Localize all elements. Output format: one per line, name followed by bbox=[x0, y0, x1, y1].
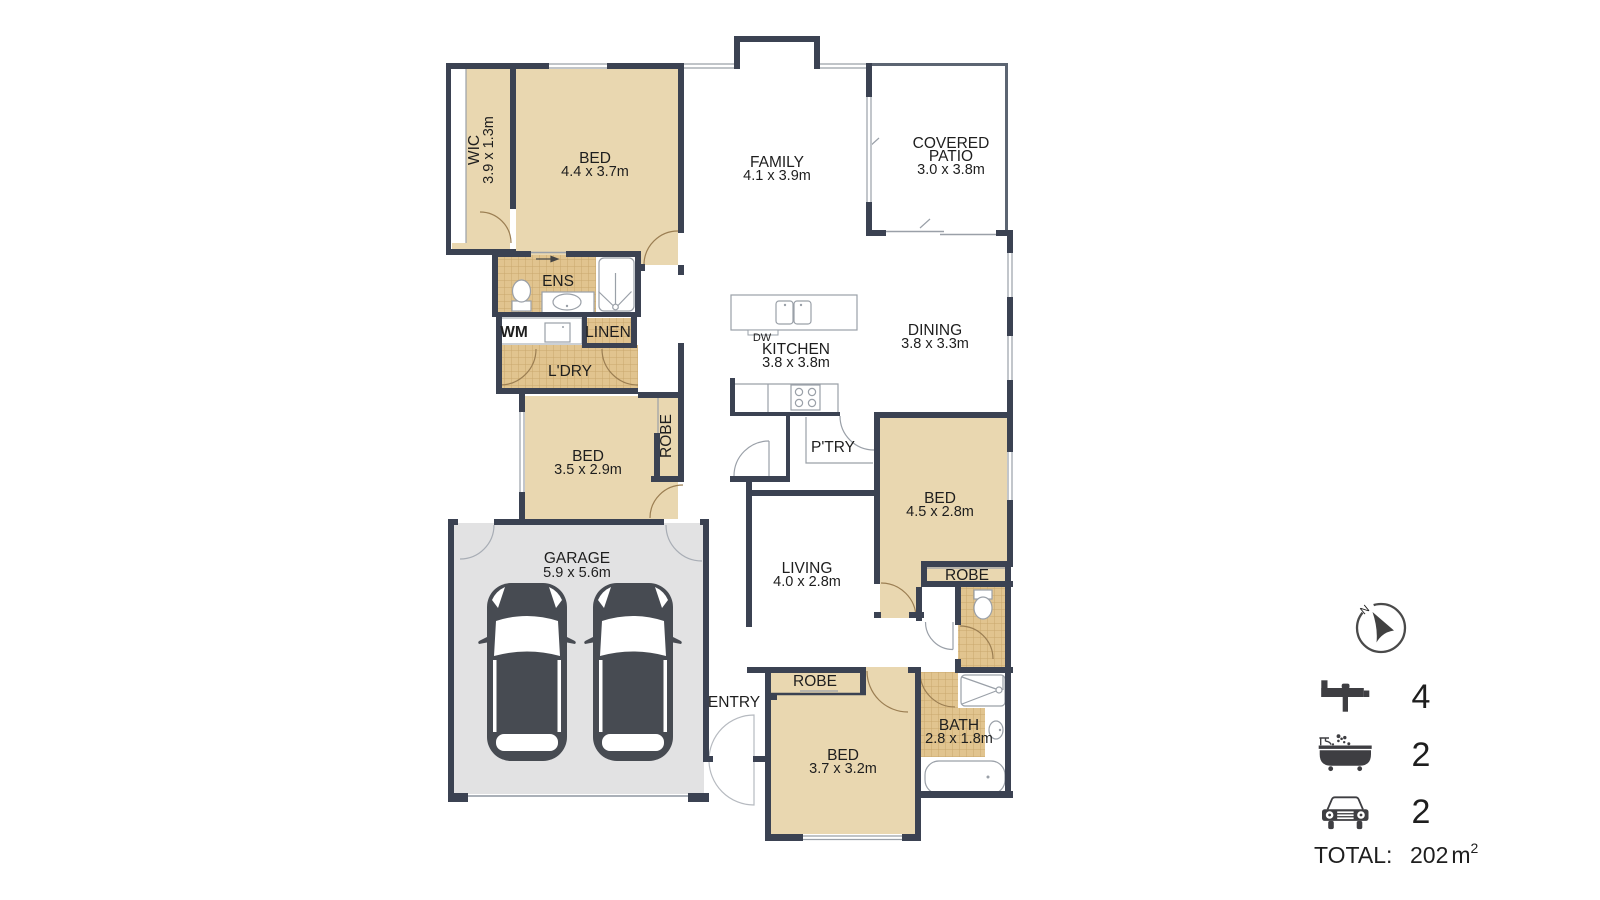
svg-text:3.8 x 3.8m: 3.8 x 3.8m bbox=[762, 355, 830, 371]
svg-text:TOTAL:: TOTAL: bbox=[1314, 842, 1392, 868]
svg-text:3.8 x 3.3m: 3.8 x 3.3m bbox=[901, 336, 969, 352]
svg-text:ENTRY: ENTRY bbox=[708, 694, 760, 711]
svg-text:4.0 x 2.8m: 4.0 x 2.8m bbox=[773, 574, 841, 590]
svg-text:3.7 x 3.2m: 3.7 x 3.2m bbox=[809, 761, 877, 777]
svg-text:ROBE: ROBE bbox=[793, 673, 837, 690]
svg-text:4.5 x 2.8m: 4.5 x 2.8m bbox=[906, 504, 974, 520]
svg-text:2: 2 bbox=[1412, 736, 1431, 774]
svg-text:ENS: ENS bbox=[542, 273, 574, 290]
svg-text:4.1 x 3.9m: 4.1 x 3.9m bbox=[743, 168, 811, 184]
svg-text:LINEN: LINEN bbox=[585, 324, 631, 341]
svg-text:2: 2 bbox=[1412, 793, 1431, 831]
svg-text:202m2: 202m2 bbox=[1410, 840, 1479, 868]
svg-text:3.0 x 3.8m: 3.0 x 3.8m bbox=[917, 162, 985, 178]
svg-text:WM: WM bbox=[500, 324, 528, 341]
svg-text:P'TRY: P'TRY bbox=[811, 439, 855, 456]
svg-text:4.4 x 3.7m: 4.4 x 3.7m bbox=[561, 164, 629, 180]
svg-text:3.9 x 1.3m: 3.9 x 1.3m bbox=[481, 116, 497, 184]
svg-text:3.5 x 2.9m: 3.5 x 2.9m bbox=[554, 462, 622, 478]
svg-text:L'DRY: L'DRY bbox=[548, 363, 592, 380]
svg-text:2.8 x 1.8m: 2.8 x 1.8m bbox=[925, 731, 993, 747]
svg-text:4: 4 bbox=[1412, 678, 1431, 716]
svg-text:ROBE: ROBE bbox=[658, 414, 675, 458]
svg-text:5.9 x 5.6m: 5.9 x 5.6m bbox=[543, 565, 611, 581]
svg-text:ROBE: ROBE bbox=[945, 567, 989, 584]
